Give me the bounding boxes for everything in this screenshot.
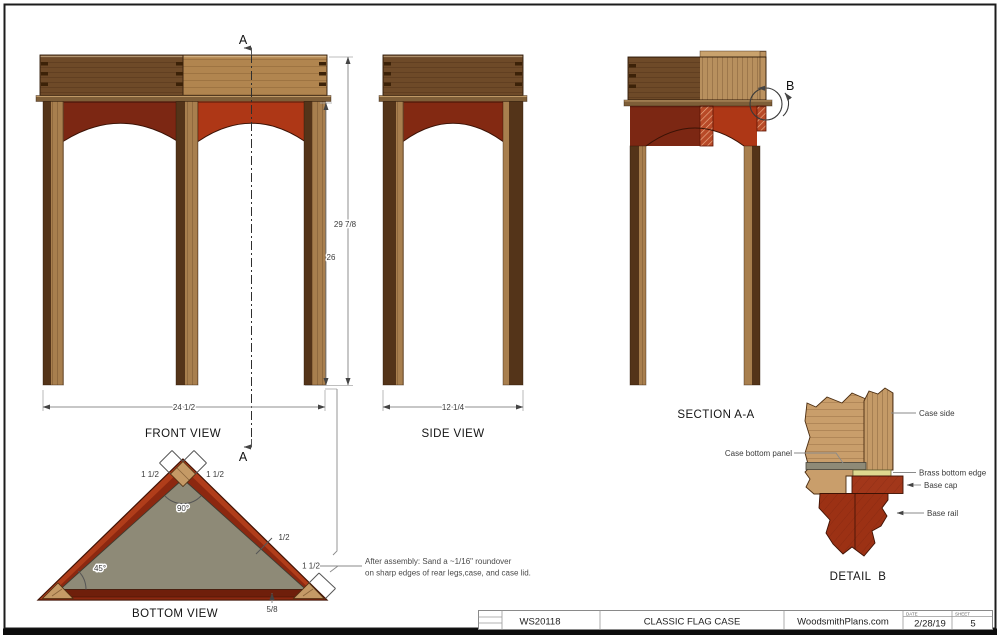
section-legs xyxy=(630,146,760,385)
date-label: DATE xyxy=(906,612,918,617)
dim-back-rail: 5/8 xyxy=(266,605,278,614)
dim-width-front: 24 1/2 xyxy=(173,403,196,412)
side-view-label: SIDE VIEW xyxy=(421,428,484,440)
assembly-note: After assembly: Sand a ~1/16" roundover … xyxy=(320,389,531,578)
dim-corner-block: 1 1/2 xyxy=(302,562,320,571)
project-title: CLASSIC FLAG CASE xyxy=(644,617,741,628)
side-dimensions: 12 1/4 xyxy=(383,390,523,412)
side-view: 12 1/4 SIDE VIEW xyxy=(379,55,527,440)
dim-angle-base: 45° xyxy=(94,564,106,573)
front-view-label: FRONT VIEW xyxy=(145,428,221,440)
bottom-back-rail xyxy=(52,590,314,598)
dim-angle-apex: 90° xyxy=(177,504,189,513)
section-view: B SECTION A-A xyxy=(624,51,794,421)
dim-height-base: 26 xyxy=(327,253,336,262)
plan-number: WS20118 xyxy=(519,617,560,628)
detail-blob-lower xyxy=(805,469,853,494)
detail-b-view: Case side Case bottom panel Brass bottom… xyxy=(725,388,987,583)
front-legs xyxy=(43,102,326,386)
side-apron xyxy=(383,102,523,142)
detail-marker-letter: B xyxy=(786,79,794,93)
section-marker-a-top: A xyxy=(239,33,248,47)
dim-height-overall: 29 7/8 xyxy=(334,220,357,229)
note-line-1: After assembly: Sand a ~1/16" roundover xyxy=(365,557,512,566)
dim-corner-left: 1 1/2 xyxy=(141,470,159,479)
dim-frame-thickness: 1/2 xyxy=(278,533,290,542)
callout-case-bottom-panel: Case bottom panel xyxy=(725,449,792,458)
side-legs xyxy=(383,102,523,386)
note-line-2: on sharp edges of rear legs,case, and ca… xyxy=(365,569,531,578)
section-marker-a-bottom: A xyxy=(239,450,248,464)
title-block: WS20118 CLASSIC FLAG CASE WoodsmithPlans… xyxy=(479,611,993,630)
sheet-label: SHEET xyxy=(955,612,970,617)
front-apron-left xyxy=(43,102,183,142)
callout-base-cap: Base cap xyxy=(924,481,958,490)
plan-sheet: A A 29 7/8 26 24 1/2 FRONT VIEW xyxy=(0,0,1000,636)
detail-view-label: DETAIL B xyxy=(830,571,887,583)
technical-drawing: A A 29 7/8 26 24 1/2 FRONT VIEW xyxy=(0,0,1000,636)
detail-brass-bottom-edge xyxy=(853,470,891,476)
sheet-value: 5 xyxy=(970,619,975,630)
dim-width-side: 12 1/4 xyxy=(442,403,465,412)
website: WoodsmithPlans.com xyxy=(797,617,889,628)
callout-case-side: Case side xyxy=(919,409,955,418)
callout-brass-bottom-edge: Brass bottom edge xyxy=(919,469,987,478)
date-value: 2/28/19 xyxy=(914,619,946,630)
section-case-front-wall xyxy=(760,52,766,101)
section-view-label: SECTION A-A xyxy=(677,409,754,421)
section-cut-hatch-center xyxy=(700,106,713,146)
bottom-view-label: BOTTOM VIEW xyxy=(132,608,218,620)
detail-case-bottom-panel xyxy=(806,463,866,470)
bottom-view: 90° 45° 1 1/2 1 1/2 1/2 1 1/2 5/8 BOTTOM… xyxy=(38,451,336,621)
callout-base-rail: Base rail xyxy=(927,509,958,518)
section-case-lid xyxy=(700,51,766,58)
dim-corner-right: 1 1/2 xyxy=(206,470,224,479)
front-view: A A 29 7/8 26 24 1/2 FRONT VIEW xyxy=(36,33,357,464)
